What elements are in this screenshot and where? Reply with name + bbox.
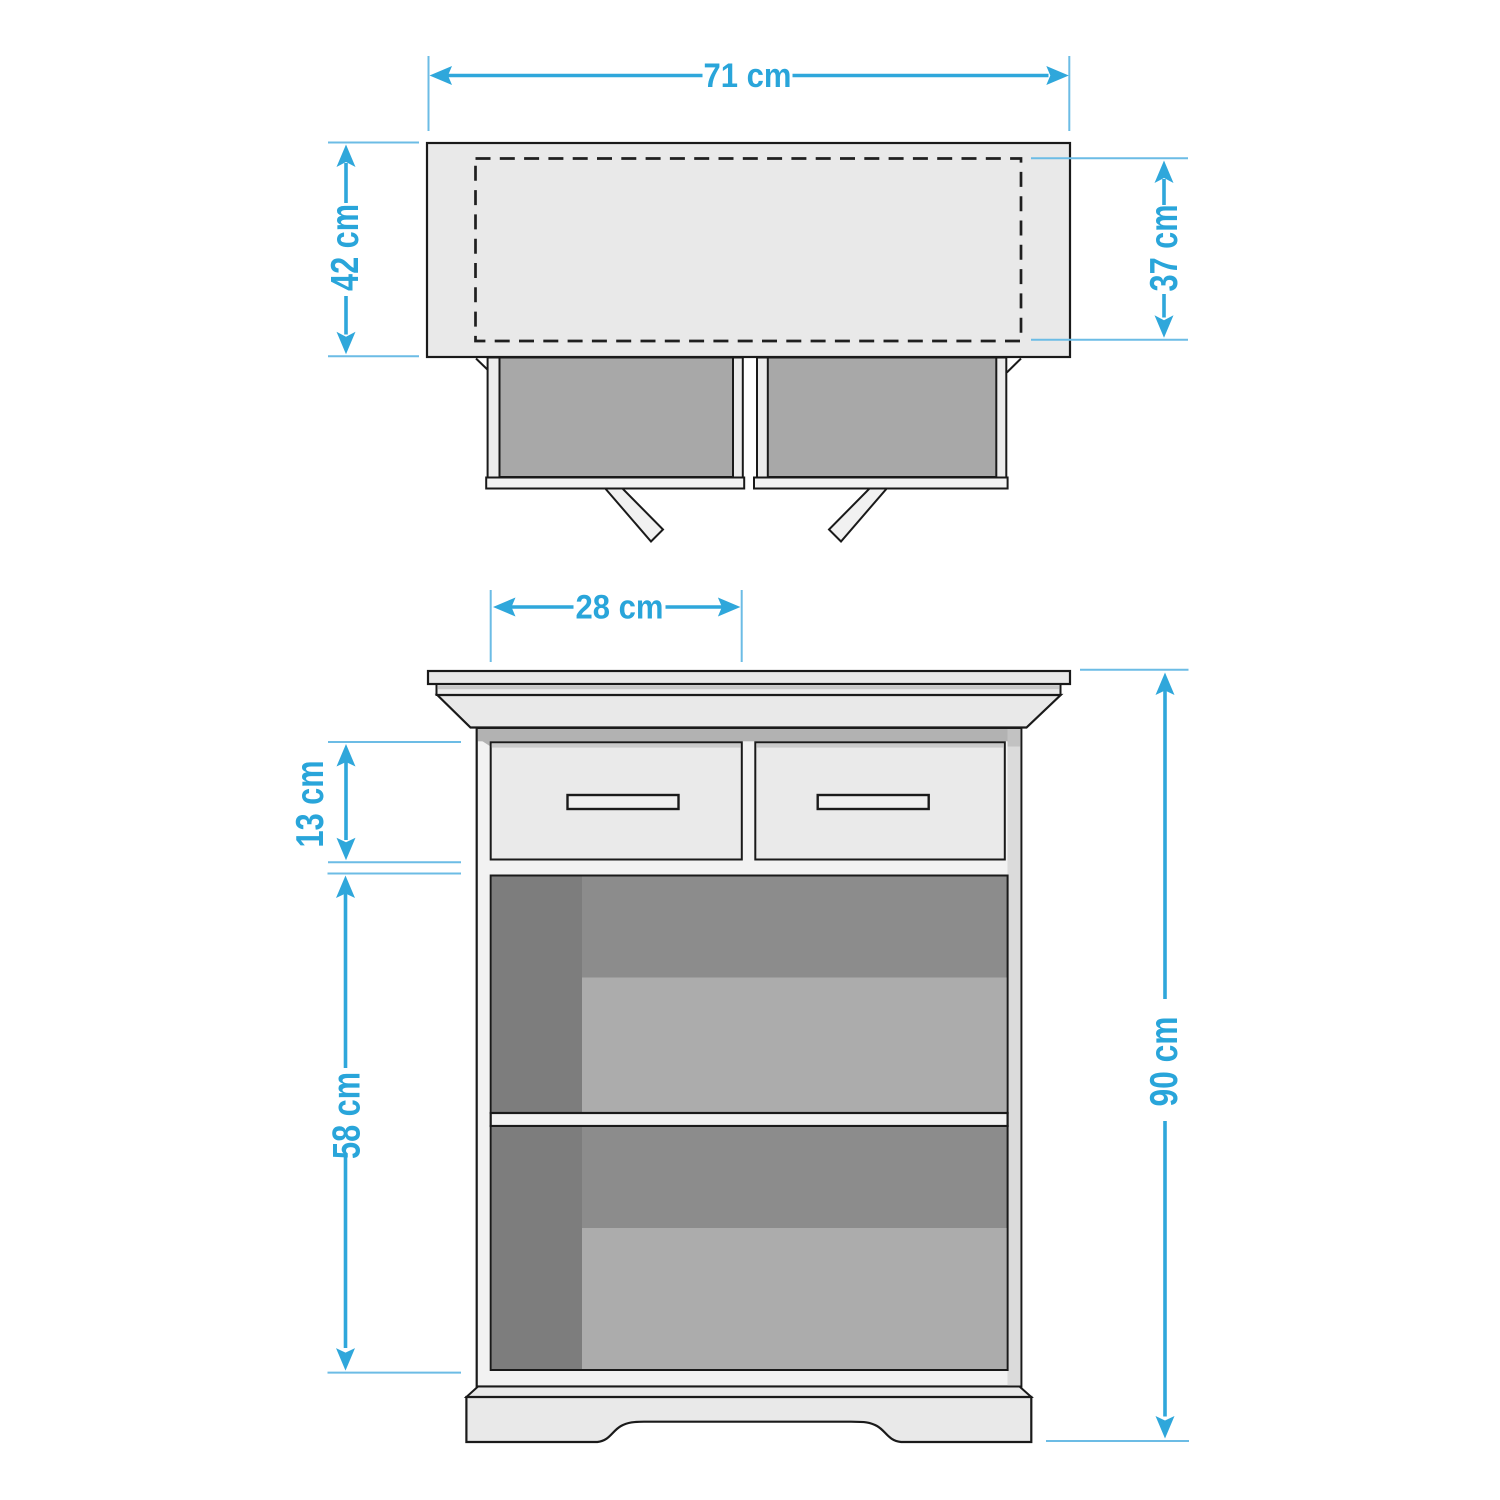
svg-text:42 cm: 42 cm xyxy=(324,204,367,291)
svg-text:28 cm: 28 cm xyxy=(576,589,664,627)
svg-text:90 cm: 90 cm xyxy=(1143,1017,1186,1107)
svg-text:37 cm: 37 cm xyxy=(1143,205,1186,292)
svg-text:58 cm: 58 cm xyxy=(326,1072,369,1159)
svg-text:13 cm: 13 cm xyxy=(289,761,332,848)
svg-text:71 cm: 71 cm xyxy=(704,57,792,95)
